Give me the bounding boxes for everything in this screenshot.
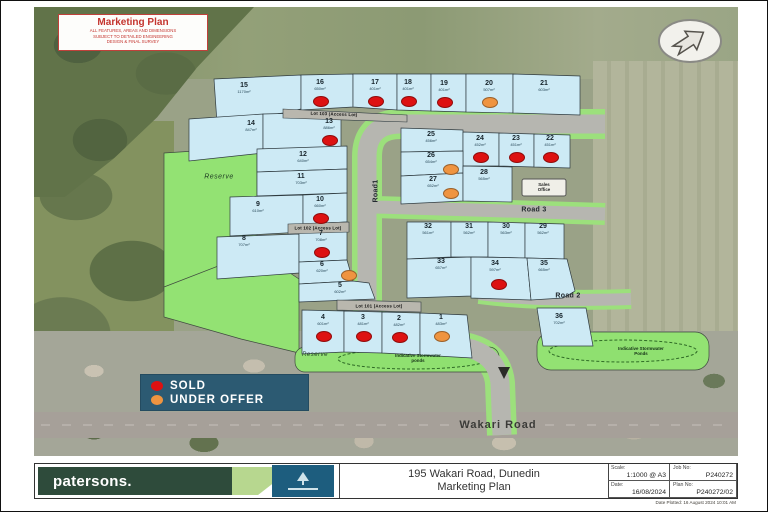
date-value: 16/08/2024 [632, 489, 666, 496]
plan-no-value: P240272/02 [696, 489, 733, 496]
lot-shape-8 [217, 234, 299, 279]
sold-dot-icon [316, 331, 332, 342]
under-offer-label: UNDER OFFER [170, 394, 264, 406]
lot-shape-21 [513, 74, 580, 115]
sold-dot-icon [313, 96, 329, 107]
plan-address: 195 Wakari Road, Dunedin [408, 468, 540, 481]
lot-shape-101 [337, 300, 421, 312]
status-legend: SOLD UNDER OFFER [141, 375, 308, 410]
scale-cell: Scale: 1:1000 @ A3 [608, 464, 670, 481]
lot-shape-14 [189, 114, 263, 161]
sold-dot-icon [356, 331, 372, 342]
under-offer-dot-icon [443, 164, 459, 175]
north-arrow-icon [659, 20, 721, 62]
job-no-value: P240272 [706, 472, 733, 479]
sold-dot-icon [313, 213, 329, 224]
lot-shape-29 [525, 223, 564, 259]
sales-office-box [522, 179, 566, 196]
under-offer-dot-icon [434, 331, 450, 342]
lot-shape-32 [407, 222, 451, 259]
marketing-plan-page: 1483m²2482m²3481m²4601m²5602m²6620m²7708… [0, 0, 768, 512]
lot-shape-33 [407, 257, 471, 298]
under-offer-dot-icon [341, 270, 357, 281]
disclaimer-title: Marketing Plan [59, 17, 207, 28]
scale-value: 1:1000 @ A3 [627, 472, 666, 479]
sold-dot-icon [401, 96, 417, 107]
sold-label: SOLD [170, 380, 206, 392]
plan-title: 195 Wakari Road, Dunedin Marketing Plan [339, 464, 609, 498]
lot-shape-25 [401, 128, 463, 152]
sold-dot-icon [491, 279, 507, 290]
disclaimer-line: DESIGN & FINAL SURVEY [59, 39, 207, 45]
title-block: patersons. 195 Wakari Road, Dunedin Mark… [34, 463, 738, 499]
sold-dot-icon [437, 97, 453, 108]
disclaimer-box: Marketing Plan ALL FEATURES, AREAS AND D… [58, 14, 208, 51]
patersons-logo-text: patersons. [53, 473, 132, 490]
lot-shape-31 [451, 222, 488, 257]
lot-shape-35 [527, 258, 575, 300]
sold-dot-icon [509, 152, 525, 163]
developer-logo [272, 465, 334, 497]
sold-dot-icon [392, 332, 408, 343]
plan-subtitle: Marketing Plan [437, 481, 510, 494]
legend-row-under-offer: UNDER OFFER [151, 393, 308, 407]
under-offer-dot-icon [482, 97, 498, 108]
lot-shape-5 [299, 281, 375, 302]
tree-emblem-icon [292, 472, 314, 486]
sold-dot-icon [322, 135, 338, 146]
plan-no-cell: Plan No: P240272/02 [670, 481, 737, 498]
site-plan-overlay [1, 1, 768, 512]
lot-shape-28 [463, 166, 512, 202]
date-plotted-note: Date Plotted: 16 August 2024 10:01 AM [656, 500, 736, 505]
plan-info-grid: Scale: 1:1000 @ A3 Job No: P240272 Date:… [608, 464, 737, 498]
under-offer-dot-icon [151, 395, 163, 405]
sold-dot-icon [543, 152, 559, 163]
lot-shape-30 [488, 222, 525, 258]
lot-shape-11 [257, 169, 347, 196]
under-offer-dot-icon [443, 188, 459, 199]
date-cell: Date: 16/08/2024 [608, 481, 670, 498]
lot-shape-12 [257, 146, 347, 172]
sold-dot-icon [473, 152, 489, 163]
job-no-cell: Job No: P240272 [670, 464, 737, 481]
lot-shape-36 [537, 308, 593, 346]
patersons-logo: patersons. [38, 467, 232, 495]
sold-dot-icon [314, 247, 330, 258]
sold-dot-icon [151, 381, 163, 391]
sold-dot-icon [368, 96, 384, 107]
legend-row-sold: SOLD [151, 379, 308, 393]
